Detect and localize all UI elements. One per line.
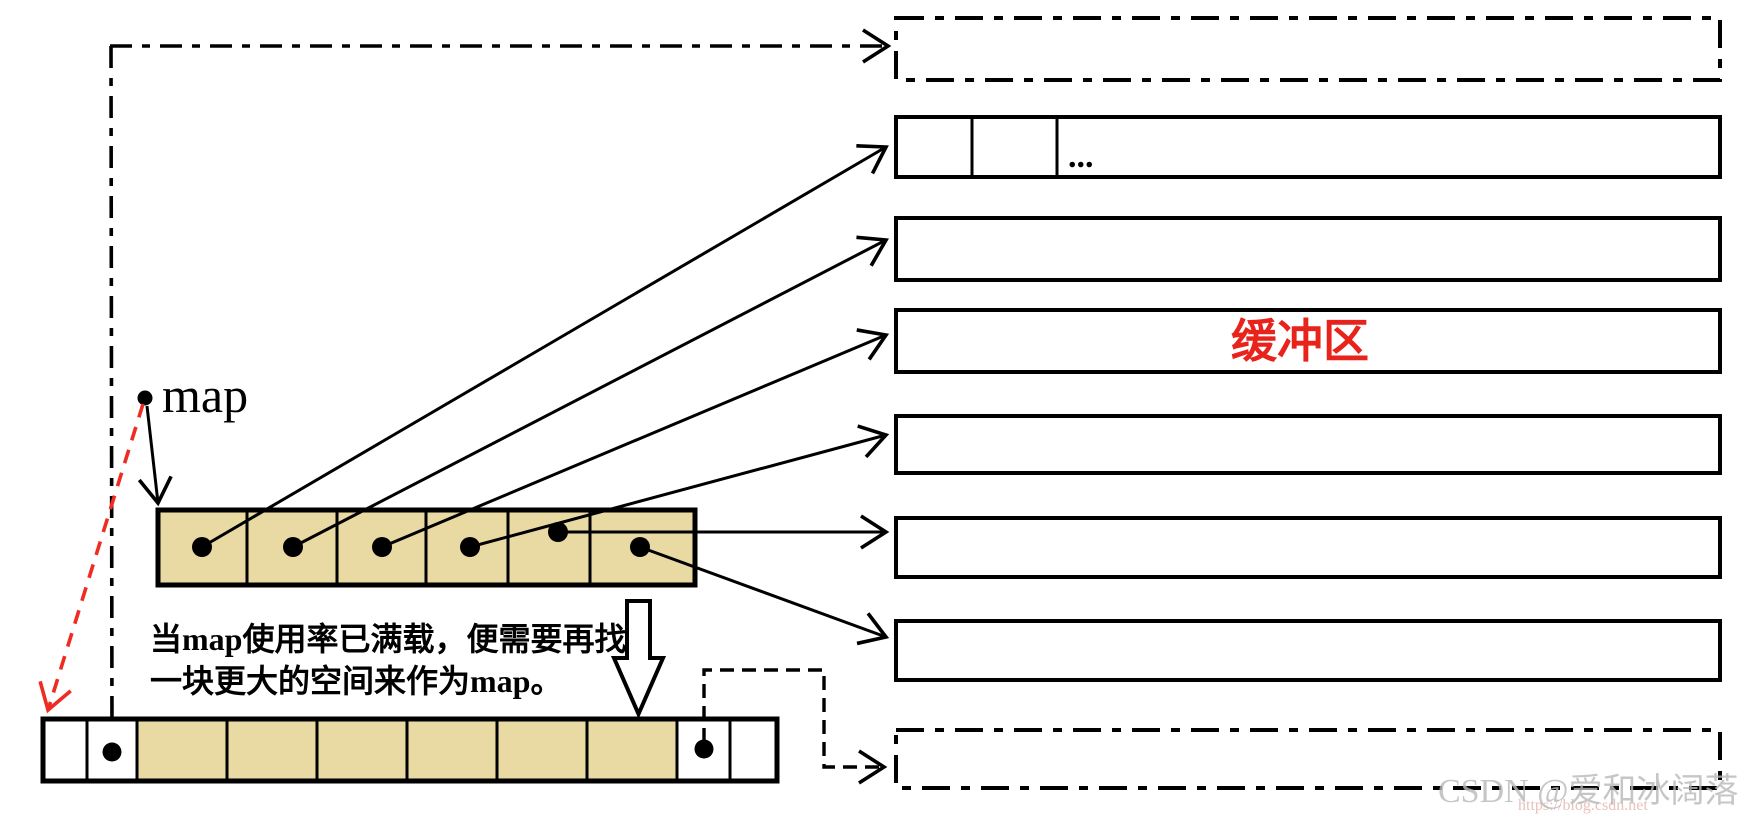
map-slot-dot-4 [460,537,480,557]
map-slot-dot-3 [372,537,392,557]
map-pointer-dot [138,391,153,406]
buffer-area-label: 缓冲区 [1231,316,1369,367]
deque-map-buffer-diagram: map ... 缓冲区 当map使用率已满载，便需要再找 一块更大的空间来作为m… [0,0,1750,815]
map-slot-dot-6 [630,537,650,557]
map-label: map [162,367,248,423]
map-slot-dot-2 [283,537,303,557]
buffer-2-ellipsis: ... [1068,138,1094,175]
watermark: CSDN @爱和冰阔落 [1438,772,1739,810]
caption-line-2: 一块更大的空间来作为map。 [150,663,562,699]
new-map-dot-right [695,740,714,759]
new-map-dot-left [103,743,122,762]
caption-line-1: 当map使用率已满载，便需要再找 [150,621,626,657]
map-slot-dot-1 [192,537,212,557]
map-slot-dot-5 [548,522,568,542]
